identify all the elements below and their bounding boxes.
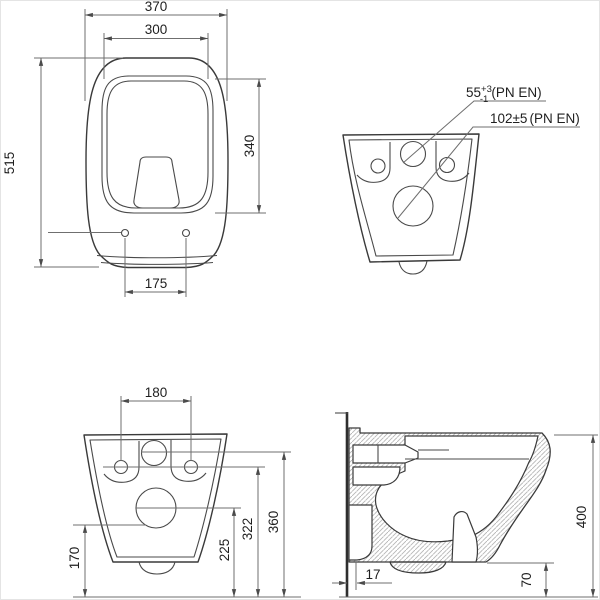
dim-overall-mounted-height-label: 400 bbox=[574, 506, 589, 529]
dim-overall-width-label: 370 bbox=[145, 1, 168, 14]
rear-trap-bump bbox=[399, 261, 427, 274]
side-mounting-foot bbox=[349, 505, 372, 560]
callout-outlet-label: 102±5(PN EN) bbox=[490, 111, 580, 126]
callout-outlet: 102±5(PN EN) bbox=[398, 111, 580, 218]
rear-outlet-hole bbox=[393, 186, 433, 226]
drawing-canvas: 370 300 515 340 175 bbox=[1, 1, 599, 599]
rear2-trap-bump bbox=[139, 562, 175, 574]
front-view: 370 300 515 340 175 bbox=[2, 1, 266, 297]
dim-underside-clearance-label: 70 bbox=[519, 572, 534, 587]
front-base-strip-lower bbox=[101, 263, 213, 265]
rear2-inlet-hole bbox=[142, 441, 167, 466]
front-seat-contour-outer bbox=[102, 76, 213, 213]
dim-bottom-edge-height-label: 170 bbox=[67, 547, 82, 570]
dim-wall-gap-label: 17 bbox=[365, 567, 380, 582]
dim-overall-mounted-height: 400 bbox=[554, 435, 598, 597]
rear-view: 55+3-1(PN EN) 102±5(PN EN) bbox=[343, 84, 580, 274]
dim-inlet-center-height-label: 360 bbox=[266, 511, 281, 534]
dim-seat-width-label: 300 bbox=[145, 22, 168, 37]
dim-hinge-hole-spacing-label: 175 bbox=[145, 276, 168, 291]
dim-wall-gap: 17 bbox=[332, 562, 392, 590]
dim-outlet-center-height: 225 bbox=[136, 508, 241, 597]
rear-dimensioned-view: 180 170 225 322 360 bbox=[67, 385, 301, 597]
dim-underside-clearance: 70 bbox=[487, 563, 554, 597]
rear-fixing-hole-left bbox=[371, 159, 385, 173]
front-hinge-hole-left bbox=[122, 230, 129, 237]
dim-outlet-center-height-label: 225 bbox=[217, 539, 232, 562]
dim-seat-width: 300 bbox=[104, 22, 208, 79]
rear2-outer-body bbox=[84, 434, 227, 562]
front-hinge-hole-right bbox=[183, 230, 190, 237]
dim-fixing-hole-spacing-label: 180 bbox=[145, 385, 168, 400]
side-trap-u bbox=[390, 562, 446, 573]
callout-inlet-label: 55+3-1(PN EN) bbox=[466, 84, 542, 105]
front-seat-contour-inner bbox=[107, 81, 208, 208]
dim-overall-height-label: 515 bbox=[2, 152, 17, 175]
side-inlet-box bbox=[353, 445, 418, 463]
side-flush-channel bbox=[353, 467, 400, 485]
dim-inlet-center-height: 360 bbox=[141, 452, 291, 597]
technical-drawing-sheet: 370 300 515 340 175 bbox=[0, 0, 600, 600]
dim-fixing-hole-spacing: 180 bbox=[121, 385, 191, 461]
front-base-strip-upper bbox=[97, 256, 217, 258]
side-section-view: 17 70 400 bbox=[332, 412, 598, 597]
dim-seat-height: 340 bbox=[215, 79, 266, 213]
front-lid-detail bbox=[134, 157, 179, 208]
dim-bottom-edge-height: 170 bbox=[67, 525, 146, 597]
rear-outer-body bbox=[343, 134, 479, 262]
dim-fixing-holes-height: 322 bbox=[103, 467, 265, 597]
rear-pocket-left bbox=[357, 142, 390, 182]
dim-seat-height-label: 340 bbox=[242, 135, 257, 158]
rear2-inner-contour bbox=[90, 439, 221, 557]
dim-fixing-holes-height-label: 322 bbox=[240, 518, 255, 541]
